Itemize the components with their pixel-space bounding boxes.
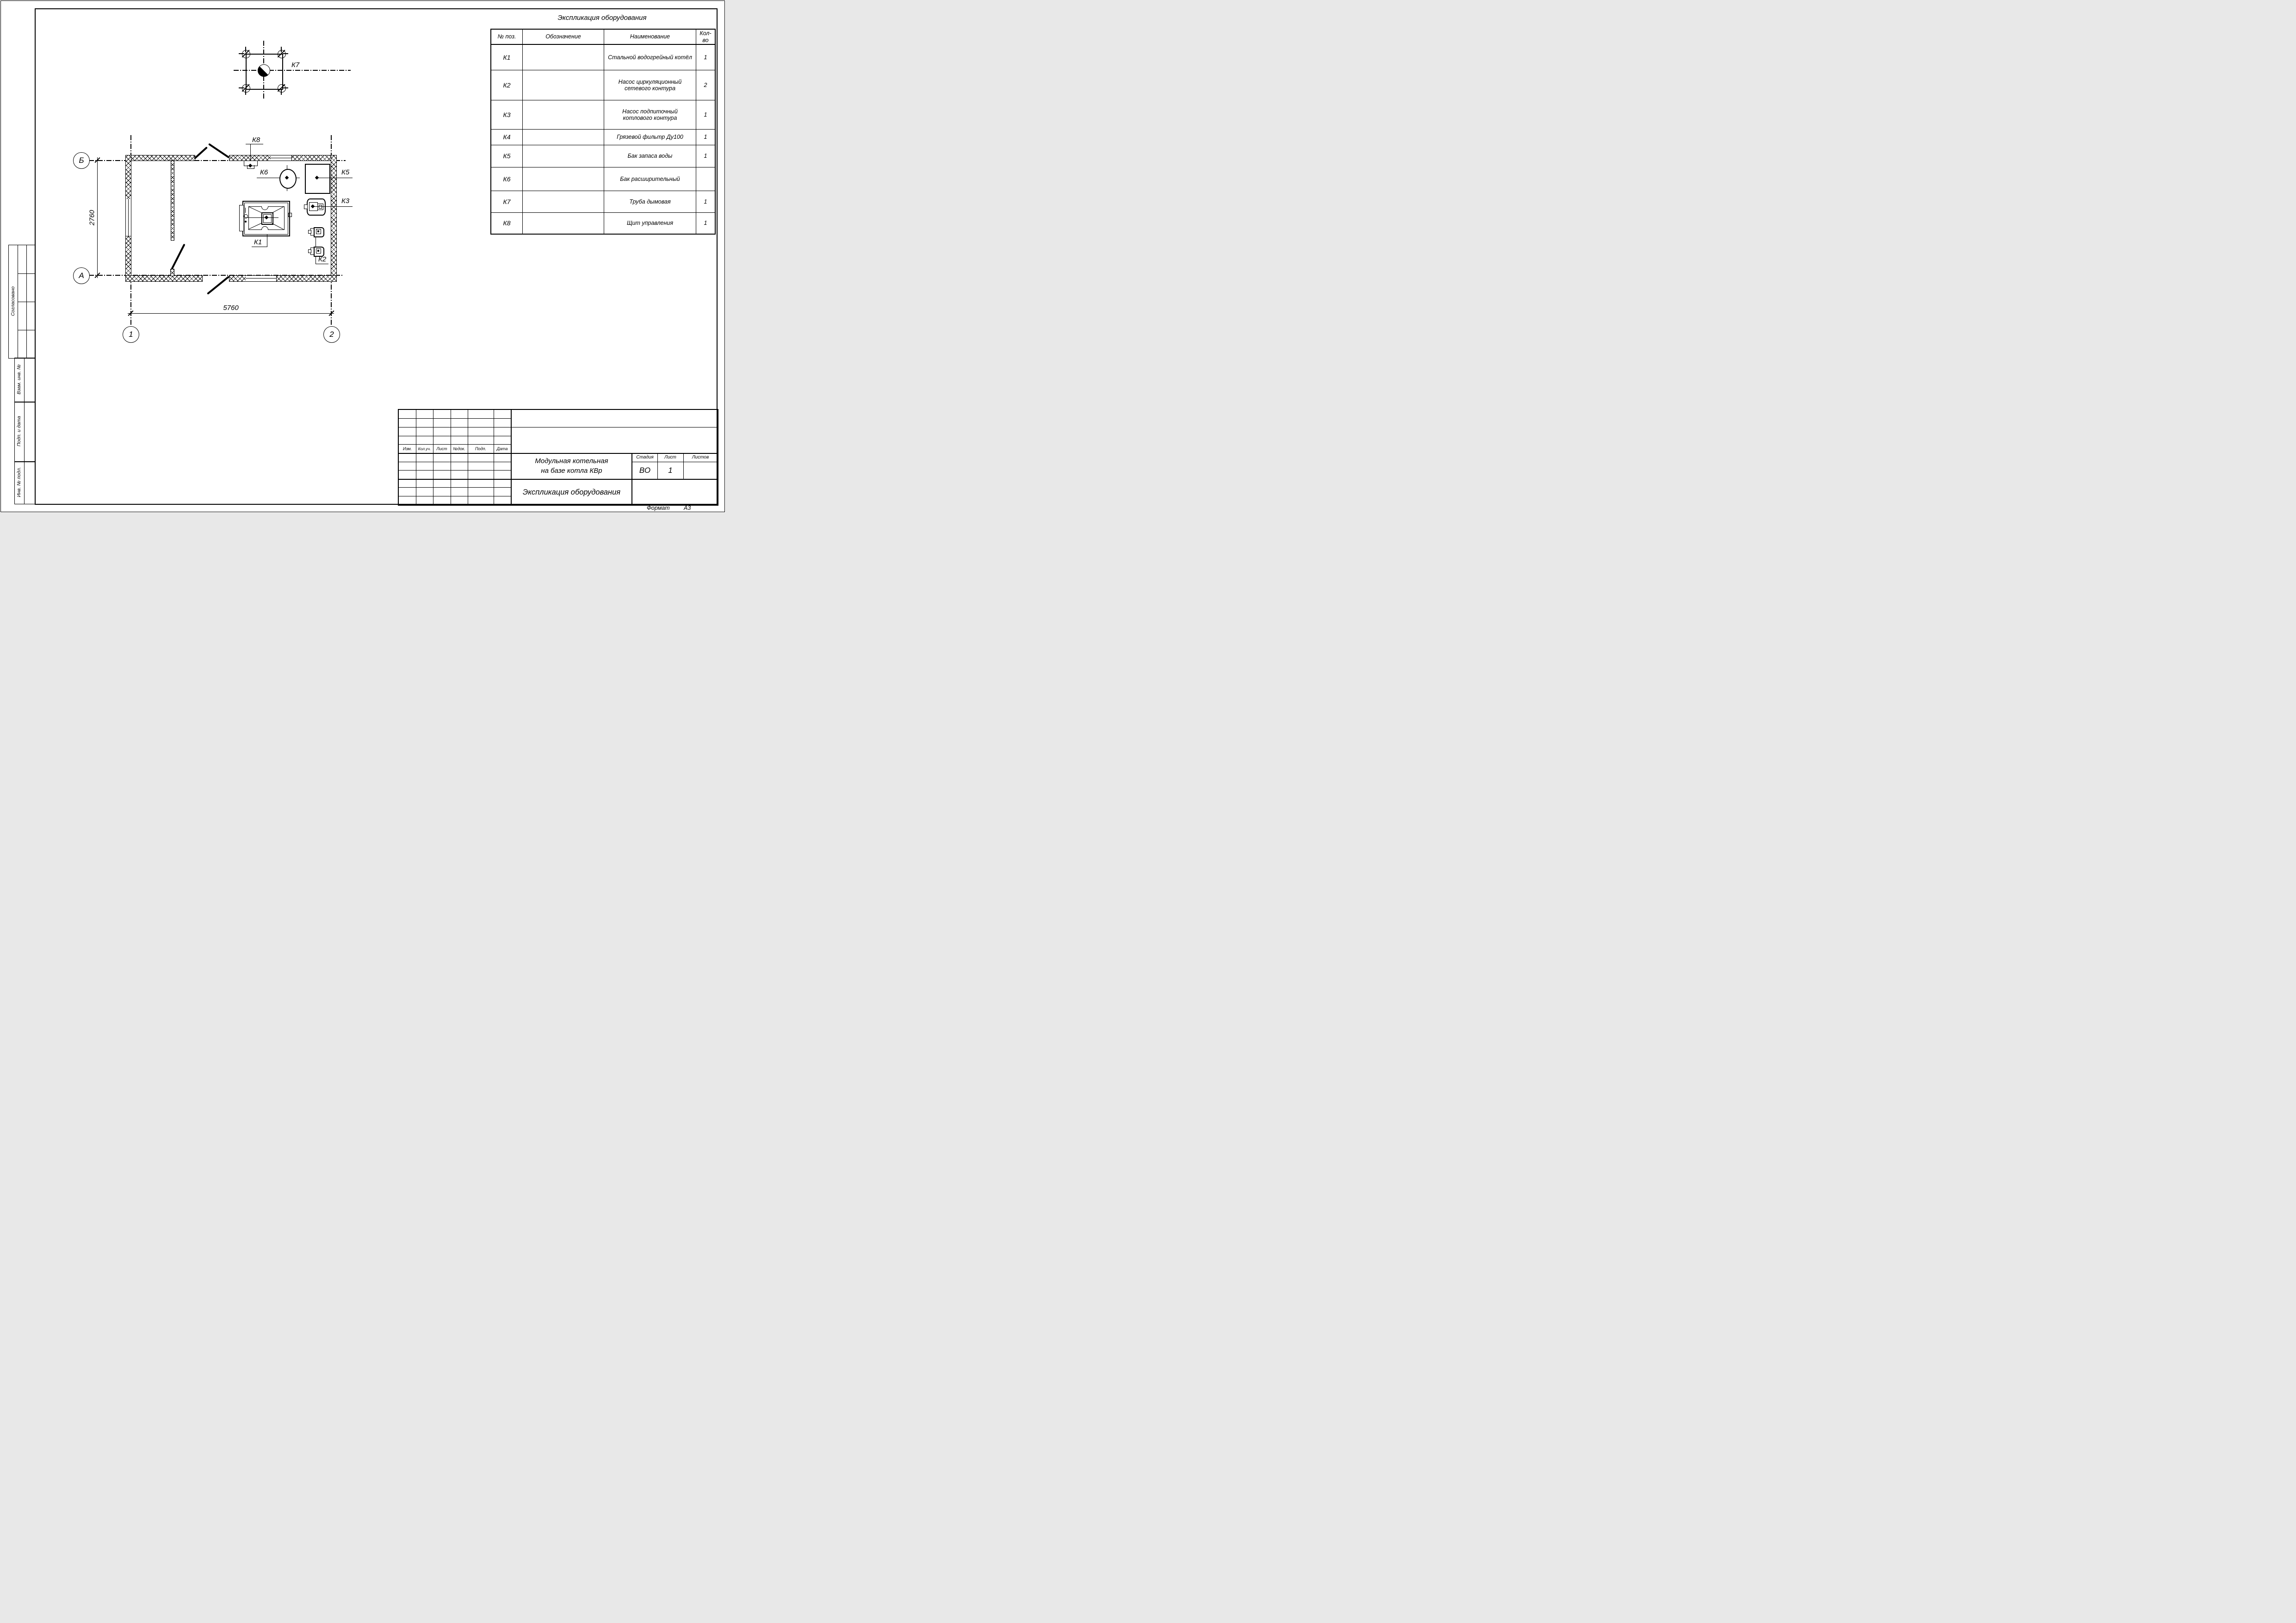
axis-bubble-1: 1 [123, 326, 139, 343]
pump-k2-inner [316, 248, 321, 254]
leader-k3 [313, 206, 353, 207]
axis-bubble-2: 2 [323, 326, 340, 343]
axis-label-b: Б [79, 156, 84, 165]
stage-value: ВО [632, 462, 657, 479]
sheet-value: 1 [657, 462, 683, 479]
axis-bubble-a: А [73, 267, 90, 284]
col-header-designation: Обозначение [523, 30, 604, 45]
wall-bottom-mid [229, 275, 247, 282]
leader-k8-underline [246, 144, 263, 144]
table-row-pos: К7 [491, 191, 523, 213]
table-row-pos: К1 [491, 45, 523, 70]
table-row-qty: 1 [696, 213, 715, 234]
table-row-qty: 1 [696, 45, 715, 70]
wall-bottom-right [276, 275, 337, 282]
tag-k7: К7 [291, 61, 299, 69]
table-row-qty: 2 [696, 70, 715, 100]
col-header-pos: № поз. [491, 30, 523, 45]
table-row-qty: 1 [696, 100, 715, 130]
table-row-designation [523, 70, 604, 100]
anchor-circle [242, 50, 250, 58]
table-row-designation [523, 45, 604, 70]
table-row-qty: 1 [696, 191, 715, 213]
wall-right [331, 155, 337, 282]
boiler-fitting-dot [245, 221, 247, 223]
tag-k8: К8 [252, 136, 260, 144]
anchor-circle [242, 84, 250, 93]
tag-k6: К6 [260, 168, 268, 176]
table-row-qty [696, 167, 715, 191]
stage-label: Стадия [632, 453, 657, 462]
sheets-label: Листов [683, 453, 718, 462]
wall-top-right [291, 155, 337, 161]
rev-header-podp: Подп. [468, 444, 494, 453]
tag-k1: К1 [254, 238, 262, 246]
table-row-designation [523, 130, 604, 145]
dim-2760-label: 2760 [88, 205, 96, 231]
pump-k3-core [319, 205, 322, 209]
table-row-pos: К3 [491, 100, 523, 130]
stamp-inv-label: Инв. № подл. [16, 467, 22, 497]
pump-k3-flange [304, 204, 308, 209]
format-value: А3 [684, 505, 691, 511]
tag-k3: К3 [341, 197, 349, 205]
dim-5760-label: 5760 [217, 304, 245, 312]
sheets-value [683, 462, 718, 479]
rev-header-koluch: Кол.уч. [416, 444, 433, 453]
rev-header-data: Дата [494, 444, 511, 453]
leader-k5 [317, 178, 353, 178]
project-title-line1: Модульная котельная [535, 457, 608, 466]
table-row-name: Бак расширительный [604, 167, 696, 191]
title-block: Изм. Кол.уч. Лист №док. Подп. Дата Модул… [398, 409, 718, 506]
table-row-designation [523, 191, 604, 213]
table-row-qty: 1 [696, 145, 715, 167]
boiler-notch [261, 226, 268, 230]
format-label: Формат [647, 505, 670, 511]
leader-k1-underline [252, 247, 267, 247]
table-row-name: Насос циркуляционный сетевого контура [604, 70, 696, 100]
stamp-vzam-label: Взам. инв. № [16, 365, 22, 395]
pump-k2-inner [316, 229, 321, 234]
table-row-designation [523, 100, 604, 130]
drawing-sheet: Согласовано Взам. инв. № Подп. и дата Ин… [0, 0, 725, 513]
table-row-pos: К2 [491, 70, 523, 100]
sheet-label: Лист [657, 453, 683, 462]
table-row-pos: К8 [491, 213, 523, 234]
project-title-line2: на базе котла КВр [541, 466, 602, 476]
expansion-tank-k6 [279, 169, 297, 189]
table-row-name: Щит управления [604, 213, 696, 234]
leader-k8 [250, 144, 251, 161]
leader-k1 [267, 235, 267, 247]
boiler-k1-flue [261, 212, 273, 225]
leader-k2-underline [316, 264, 328, 264]
boiler-nozzle [288, 213, 292, 217]
pump-k2-stub [308, 230, 311, 234]
table-row-designation [523, 145, 604, 167]
table-row-designation [523, 167, 604, 191]
wall-left-upper [125, 155, 131, 200]
table-row-pos: К6 [491, 167, 523, 191]
axis-bubble-b: Б [73, 152, 90, 169]
table-row-name: Бак запаса воды [604, 145, 696, 167]
axis-label-a: А [79, 271, 84, 280]
window-left [125, 199, 131, 236]
boiler-door [239, 205, 244, 231]
table-row-qty: 1 [696, 130, 715, 145]
tag-k2: К2 [318, 255, 326, 263]
rev-header-dok: №док. [451, 444, 468, 453]
col-header-name: Наименование [604, 30, 696, 45]
tag-k5: К5 [341, 168, 349, 176]
wall-bottom-left [125, 275, 203, 282]
equipment-table-title: Экспликация оборудования [490, 14, 714, 22]
table-row-designation [523, 213, 604, 234]
stamp-podp-label: Подп. и дата [16, 416, 22, 446]
wall-partition [171, 160, 174, 241]
boiler-fitting-line [245, 208, 246, 213]
window-bottom [246, 275, 276, 282]
window-top [271, 155, 291, 161]
dim-2760-line [97, 157, 98, 278]
rev-header-list: Лист [433, 444, 451, 453]
anchor-circle [278, 84, 286, 93]
dim-5760-line [128, 313, 334, 314]
boiler-fitting-circle [244, 214, 248, 218]
axis-label-2: 2 [329, 330, 334, 339]
table-row-pos: К4 [491, 130, 523, 145]
table-row-name: Насос подпиточный котлового контура [604, 100, 696, 130]
wall-partition-stub [170, 269, 174, 276]
pump-k2-stub [308, 249, 311, 253]
equipment-table: № поз. Обозначение Наименование Кол-во К… [490, 29, 716, 235]
table-row-name: Стальной водогрейный котёл [604, 45, 696, 70]
table-row-name: Труба дымовая [604, 191, 696, 213]
chimney-center-mark [258, 64, 270, 77]
table-row-name: Грязевой фильтр Ду100 [604, 130, 696, 145]
table-row-pos: К5 [491, 145, 523, 167]
rev-header-izm: Изм. [399, 444, 416, 453]
boiler-centerline [245, 217, 278, 218]
axis-label-1: 1 [129, 330, 133, 339]
doc-title: Экспликация оборудования [512, 480, 631, 505]
stamp-agreed-label: Согласовано [10, 286, 16, 316]
project-title: Модульная котельная на базе котла КВр [512, 454, 631, 478]
col-header-qty: Кол-во [696, 30, 715, 45]
anchor-circle [278, 50, 286, 58]
wall-top-left [125, 155, 195, 161]
